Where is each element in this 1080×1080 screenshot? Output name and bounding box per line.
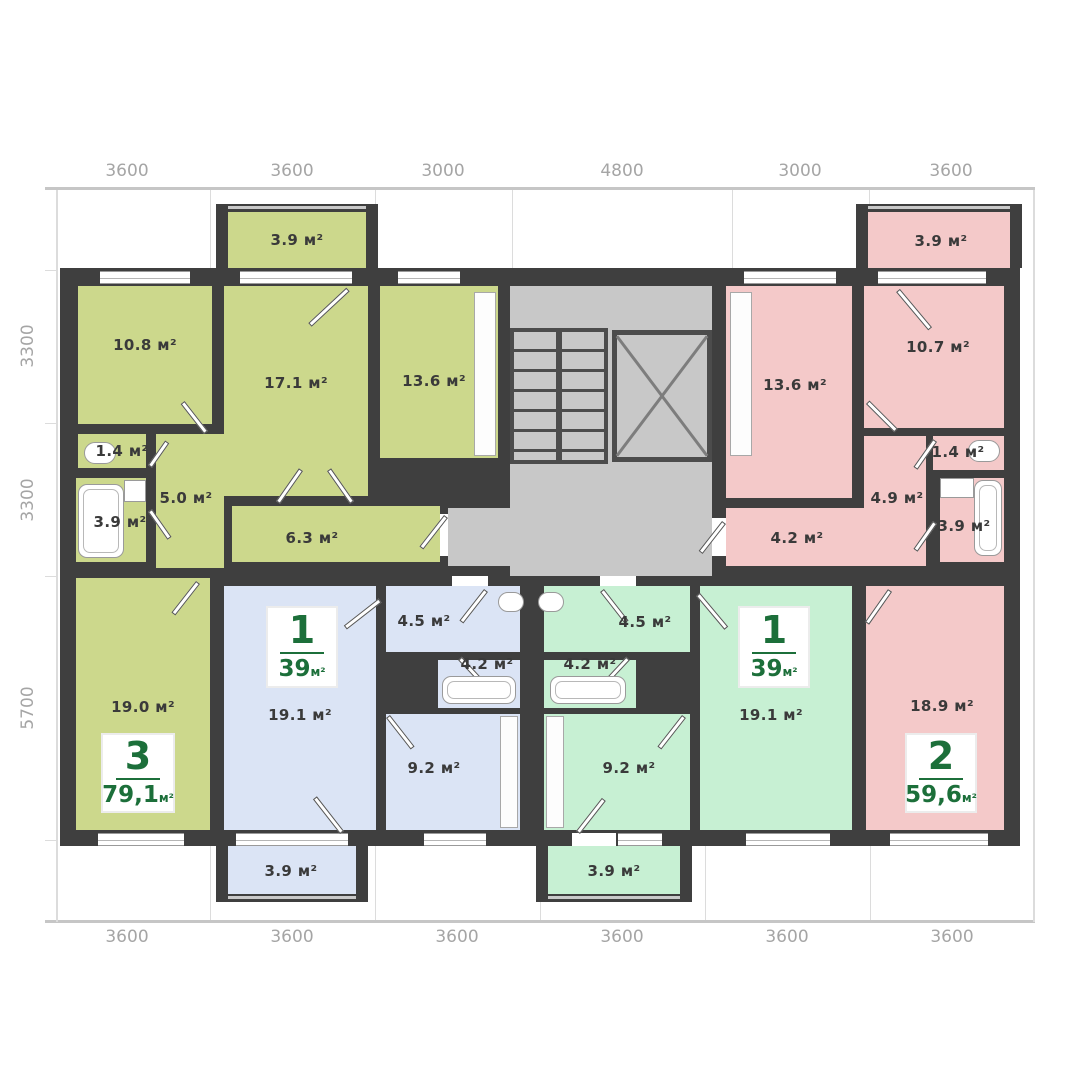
badge-divider [116,778,160,780]
bay-line [732,190,733,268]
room-area-label: 3.9 м² [93,513,146,531]
room-area-label: 13.6 м² [763,376,827,394]
tick-line [45,270,57,271]
apartment-area: 39м² [750,657,797,682]
apartment-badge-1b: 1 39м² [740,608,808,686]
stairs-flight-left [514,332,556,460]
window [398,271,460,284]
window [100,271,190,284]
room-apt3-bedroom [78,286,212,424]
room-area-label: 10.7 м² [906,338,970,356]
window-balcony-door [240,271,352,284]
window-balcony-door [236,833,348,846]
apartment-badge-1a: 1 39м² [268,608,336,686]
tick-line [45,423,57,424]
elevator-shaft [612,330,712,462]
dim-top-3: 3000 [421,161,464,181]
dim-top-2: 3600 [270,161,313,181]
room-area-label: 3.9 м² [264,862,317,880]
bay-line [210,846,211,920]
window [746,833,830,846]
bay-line [512,190,513,268]
room-area-label: 13.6 м² [402,372,466,390]
balcony-railing [868,206,1010,209]
room-area-label: 1.4 м² [95,442,148,460]
window [890,833,988,846]
dim-top-6: 3600 [929,161,972,181]
apartment-number: 2 [928,737,954,775]
room-apt2-corridor [726,508,926,566]
window [744,271,836,284]
door-opening [572,833,616,846]
badge-divider [280,652,324,654]
sink [498,592,524,612]
dim-top-4: 4800 [600,161,643,181]
stairs [510,328,608,464]
apartment-badge-2: 2 59,6м² [907,735,975,811]
room-area-label: 19.0 м² [111,698,175,716]
apartment-area: 39м² [278,657,325,682]
door-opening [600,576,636,586]
room-area-label: 17.1 м² [264,374,328,392]
apartment-number: 1 [761,611,787,649]
sink [940,478,974,498]
room-area-label: 9.2 м² [407,759,460,777]
room-area-label: 9.2 м² [602,759,655,777]
dim-bottom-6: 3600 [930,927,973,947]
room-area-label: 10.8 м² [113,336,177,354]
room-area-label: 19.1 м² [739,706,803,724]
bathtub [442,676,516,704]
balcony-railing [548,896,680,899]
bay-line [870,846,871,920]
room-area-label: 4.2 м² [563,655,616,673]
sink [538,592,564,612]
room-area-label: 3.9 м² [914,232,967,250]
room-area-label: 3.9 м² [937,517,990,535]
room-area-label: 6.3 м² [285,529,338,547]
apartment-badge-3: 3 79,1м² [103,735,173,811]
room-area-label: 4.2 м² [460,655,513,673]
tick-line [45,840,57,841]
window [618,833,662,846]
room-area-label: 1.4 м² [931,443,984,461]
room-area-label: 3.9 м² [587,862,640,880]
bay-line [210,190,211,268]
bay-line [375,846,376,920]
balcony-railing [228,206,366,209]
kitchen-counter [500,716,518,828]
boundary-right [1033,190,1035,922]
stairs-flight-right [562,332,604,460]
kitchen-counter [474,292,496,456]
bathtub [550,676,626,704]
door-opening [452,576,488,586]
dimension-line-top [45,187,1035,190]
bay-line [705,846,706,920]
dim-bottom-1: 3600 [105,927,148,947]
kitchen-counter [730,292,752,456]
boundary-left [56,190,58,922]
dimension-line-bottom [45,920,1035,923]
room-area-label: 4.9 м² [870,489,923,507]
kitchen-counter [546,716,564,828]
apartment-number: 1 [289,611,315,649]
room-apt2-bedroom [864,286,1004,428]
washer [124,480,146,502]
badge-divider [919,778,963,780]
dim-left-2: 3300 [18,478,38,521]
room-area-label: 4.2 м² [770,529,823,547]
apartment-number: 3 [125,737,151,775]
room-area-label: 4.5 м² [397,612,450,630]
room-area-label: 5.0 м² [159,489,212,507]
dim-top-5: 3000 [778,161,821,181]
dim-bottom-4: 3600 [600,927,643,947]
window [424,833,486,846]
floor-plan: 3600 3600 3000 4800 3000 3600 3300 3300 … [0,0,1080,1080]
apartment-area: 79,1м² [102,783,174,808]
window-balcony-door [878,271,986,284]
dim-left-1: 3300 [18,324,38,367]
room-area-label: 4.5 м² [618,613,671,631]
balcony-railing [228,896,356,899]
apartment-area: 59,6м² [905,783,977,808]
stairwell-vestibule [448,508,510,566]
window [98,833,184,846]
dim-bottom-5: 3600 [765,927,808,947]
badge-divider [752,652,796,654]
room-area-label: 3.9 м² [270,231,323,249]
dim-bottom-3: 3600 [435,927,478,947]
tick-line [45,576,57,577]
dim-top-1: 3600 [105,161,148,181]
dim-left-3: 5700 [18,686,38,729]
dim-bottom-2: 3600 [270,927,313,947]
room-area-label: 18.9 м² [910,697,974,715]
room-area-label: 19.1 м² [268,706,332,724]
